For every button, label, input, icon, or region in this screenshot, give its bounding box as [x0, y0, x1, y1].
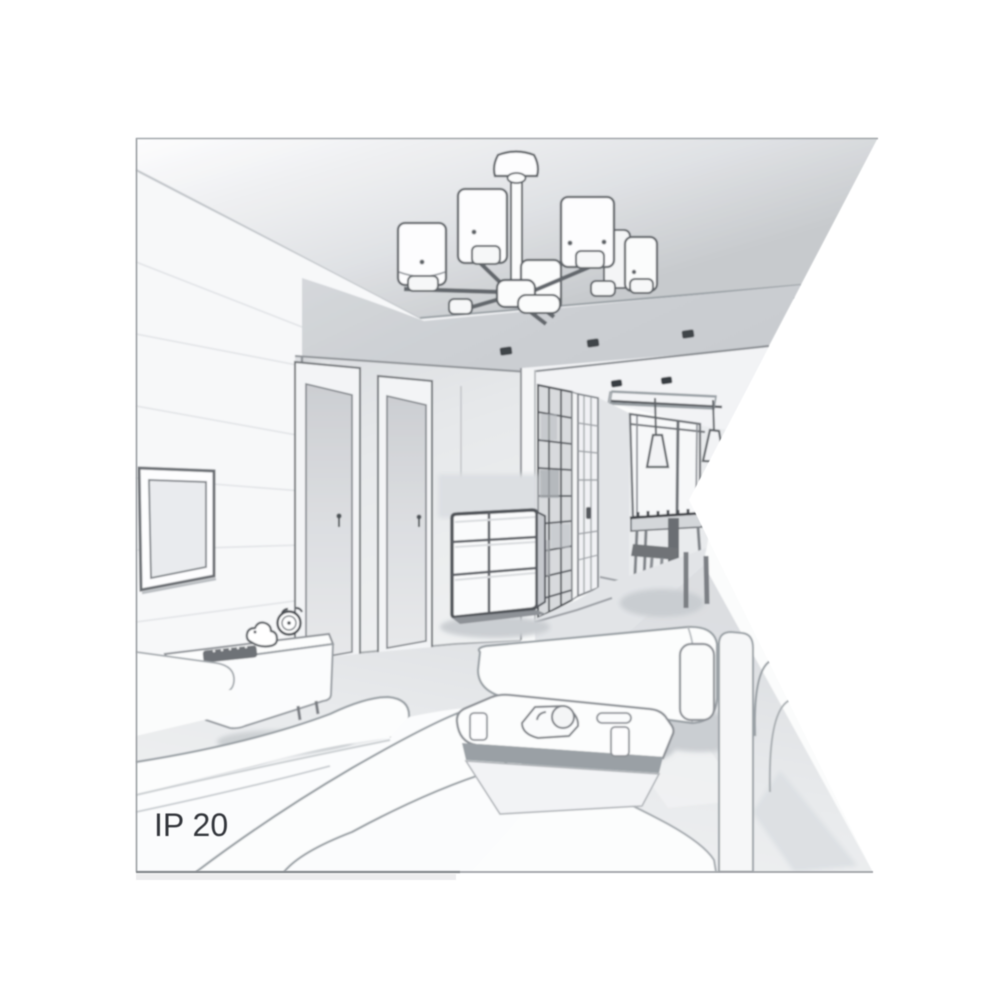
- svg-text:IP 20: IP 20: [154, 807, 228, 843]
